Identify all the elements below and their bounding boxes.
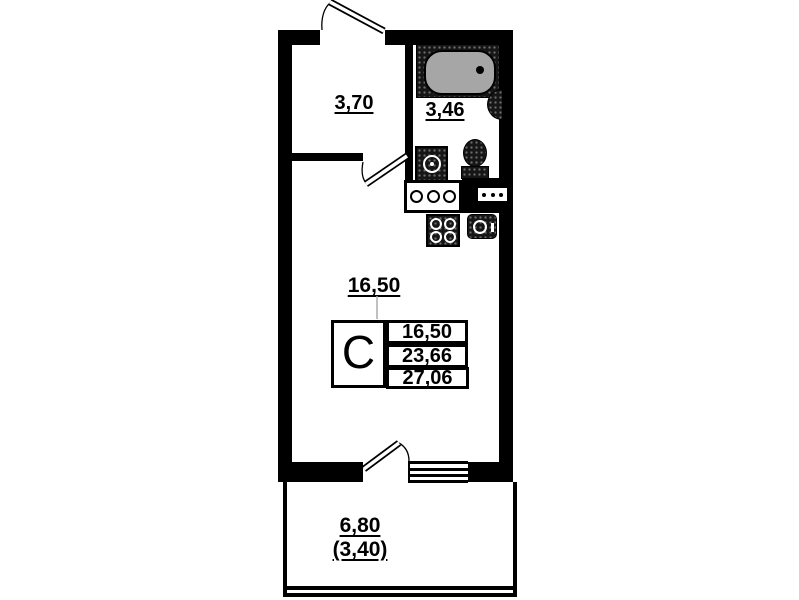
- counter-basin: [427, 190, 440, 203]
- area-value-row: 27,06: [386, 367, 469, 389]
- wall-top-right: [385, 30, 513, 45]
- washing-machine-icon: [415, 146, 448, 182]
- stove-burner: [444, 218, 456, 230]
- wall-bottom-left: [278, 462, 363, 482]
- balcony-area-label: 6,80: [320, 514, 400, 538]
- balcony-wall-right: [513, 482, 517, 597]
- balcony-railing-outer: [283, 586, 517, 590]
- area-value-row: 23,66: [386, 344, 468, 368]
- balcony-door-swing-arc: [399, 443, 409, 461]
- floor-plan: 3,70 3,46 16,50 6,80 (3,40) С 16,50 23,6…: [0, 0, 799, 600]
- balcony-railing-inner: [283, 593, 517, 597]
- counter-sink-icon: [404, 180, 462, 213]
- wall-hallway: [292, 153, 363, 161]
- balcony-wall-left: [283, 482, 287, 597]
- vent-dot: [491, 193, 495, 197]
- area-value-row: 16,50: [386, 320, 468, 344]
- washing-machine-dot: [430, 162, 434, 166]
- entrance-door-swing-arc: [322, 3, 330, 30]
- window-pane-line: [410, 474, 468, 477]
- interior-door-leaf: [362, 156, 407, 184]
- vent-dot: [499, 193, 503, 197]
- kitchen-sink-tap: [491, 223, 494, 232]
- stove-burner: [430, 218, 442, 230]
- stove-burner: [444, 231, 456, 243]
- toilet-icon: [461, 139, 489, 181]
- hallway-area-label: 3,70: [319, 92, 389, 115]
- stove-icon: [426, 214, 460, 247]
- apartment-info-table: С 16,50 23,66 27,06: [331, 320, 468, 389]
- door-symbols-overlay: [0, 0, 799, 600]
- interior-door-swing-arc: [362, 162, 367, 184]
- toilet-bowl: [463, 139, 487, 167]
- stove-burner: [430, 231, 442, 243]
- vent-dot: [482, 193, 486, 197]
- entrance-door-leaf: [322, 2, 384, 31]
- bathtub-basin: [424, 50, 496, 95]
- window-symbol: [408, 461, 468, 483]
- balcony-reduced-area-label: (3,40): [315, 538, 405, 562]
- vent-grille-slots: [476, 186, 509, 203]
- bathtub-drain: [476, 66, 484, 74]
- window-pane-line: [410, 468, 468, 471]
- kitchen-sink-icon: [467, 214, 497, 239]
- bathroom-area-label: 3,46: [410, 99, 480, 122]
- counter-basin: [443, 190, 456, 203]
- vent-grille-icon: [462, 178, 513, 213]
- balcony-door-leaf: [364, 443, 409, 469]
- bathtub-icon: [416, 44, 500, 98]
- room-type-letter: С: [331, 320, 386, 388]
- wall-left: [278, 30, 292, 462]
- counter-basin: [410, 190, 423, 203]
- living-area-label: 16,50: [334, 274, 414, 298]
- wall-bottom-right: [467, 462, 513, 482]
- kitchen-sink-basin: [473, 220, 487, 234]
